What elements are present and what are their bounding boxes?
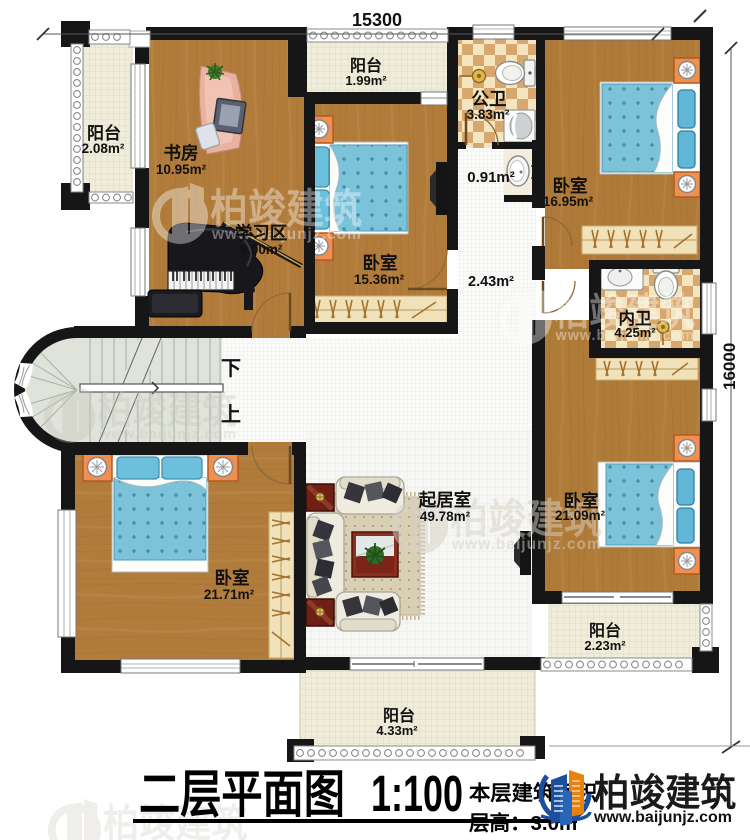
svg-text:起居室: 起居室	[418, 490, 472, 510]
svg-text:公卫: 公卫	[472, 89, 507, 109]
svg-text:4.33m²: 4.33m²	[376, 723, 418, 738]
svg-text:1.99m²: 1.99m²	[345, 73, 387, 88]
svg-text:9.00m²: 9.00m²	[240, 242, 283, 257]
svg-text:卧室: 卧室	[215, 568, 250, 588]
svg-text:下: 下	[221, 358, 241, 380]
svg-text:15300: 15300	[352, 10, 402, 30]
svg-text:www.baijunjz.com: www.baijunjz.com	[593, 809, 732, 826]
svg-text:2.23m²: 2.23m²	[584, 638, 626, 653]
svg-text:16000: 16000	[720, 343, 739, 390]
svg-text:4.25m²: 4.25m²	[614, 325, 656, 340]
svg-text:3.83m²: 3.83m²	[467, 107, 510, 122]
svg-text:49.78m²: 49.78m²	[420, 509, 471, 524]
svg-text:21.09m²: 21.09m²	[555, 508, 606, 523]
svg-text:2.43m²: 2.43m²	[468, 274, 514, 290]
svg-text:10.95m²: 10.95m²	[156, 162, 207, 177]
svg-text:二层平面图: 二层平面图	[139, 766, 345, 823]
svg-text:阳台: 阳台	[87, 123, 121, 143]
svg-text:学习区: 学习区	[235, 223, 288, 243]
svg-text:0.91m²: 0.91m²	[467, 169, 515, 186]
svg-text:上: 上	[221, 403, 241, 426]
svg-text:卧室: 卧室	[553, 176, 588, 196]
svg-text:21.71m²: 21.71m²	[204, 587, 255, 602]
svg-text:1:100: 1:100	[371, 765, 463, 822]
svg-text:卧室: 卧室	[363, 253, 398, 273]
svg-text:2.08m²: 2.08m²	[82, 141, 125, 156]
svg-text:16.95m²: 16.95m²	[543, 194, 594, 209]
svg-text:书房: 书房	[164, 143, 199, 163]
svg-text:15.36m²: 15.36m²	[354, 272, 405, 287]
